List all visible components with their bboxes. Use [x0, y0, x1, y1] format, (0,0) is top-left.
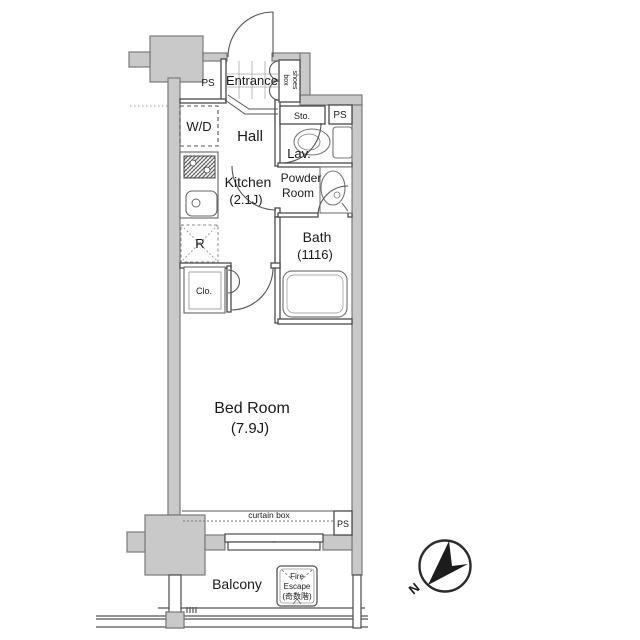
washbasin-icon	[320, 167, 352, 213]
lavatory-label: Lav.	[287, 146, 311, 161]
kitchen-counter	[180, 152, 218, 218]
wall-powder-bath-left	[278, 213, 318, 217]
sink-icon	[186, 191, 217, 216]
balcony-window	[225, 534, 323, 550]
wall-powder-bath-right	[348, 213, 352, 217]
powder-room-label-1: Powder	[281, 171, 322, 185]
pillar-bottom-left-arm	[127, 532, 145, 552]
kitchen-size-label: (2.1J)	[229, 192, 262, 207]
bath-size-label: (1116)	[297, 247, 333, 262]
burner-icon	[190, 160, 196, 166]
left-wall	[168, 78, 180, 515]
bedroom-door-leaf	[227, 266, 231, 312]
balcony-post-right	[353, 575, 361, 628]
balcony-post-left	[169, 575, 181, 613]
pipe-shaft-top-label: PS	[201, 78, 215, 89]
pipe-shaft-right-label: PS	[333, 110, 347, 121]
balcony-footing-overlay	[166, 612, 184, 628]
pillar-bottom-left	[145, 515, 205, 575]
wall-bath-bottom	[278, 319, 352, 324]
wall-under-ps	[180, 99, 226, 103]
stove-icon	[184, 156, 215, 178]
wall-kitchen-bedroom-stub	[271, 263, 280, 268]
window-pane-inner	[228, 542, 320, 550]
svg-text:box: box	[282, 74, 289, 86]
fire-escape-label-1: Fire	[290, 572, 304, 581]
floor-plan-drawing: N PS Entrance shoes box W/D Hall Sto. PS…	[0, 0, 640, 640]
closet-label: Clo.	[196, 286, 212, 296]
window-pane-outer	[225, 534, 323, 542]
bedroom-label: Bed Room	[214, 400, 290, 417]
burner-icon	[204, 167, 210, 173]
fire-escape-label-3: (奇数階)	[282, 591, 312, 601]
pillar-top-left	[150, 36, 203, 82]
bedroom-south-wall-right	[323, 535, 352, 550]
powder-room-label-2: Room	[282, 186, 314, 200]
right-wall-step	[300, 95, 362, 105]
wall-lav-powder	[278, 163, 352, 167]
floor-plan-page: N PS Entrance shoes box W/D Hall Sto. PS…	[0, 0, 640, 640]
pipe-shaft-bottom-label: PS	[337, 519, 349, 529]
pillar-top-left-arm	[129, 52, 150, 67]
fire-escape-label-2: Escape	[284, 582, 311, 591]
bedroom-size-label: (7.9J)	[231, 420, 269, 437]
refrigerator-label: R	[195, 236, 204, 251]
bath-label: Bath	[303, 229, 332, 245]
washer-dryer-label: W/D	[186, 119, 211, 134]
wall-hall-lav	[275, 100, 280, 166]
right-wall-main	[352, 105, 362, 575]
storage-label: Sto.	[294, 111, 310, 121]
bathtub-icon	[283, 271, 347, 317]
balcony-label: Balcony	[212, 576, 262, 592]
kitchen-label: Kitchen	[225, 174, 272, 190]
hall-label: Hall	[237, 128, 263, 145]
svg-text:shoes: shoes	[291, 71, 298, 90]
entrance-label: Entrance	[226, 73, 278, 88]
sink-drain-icon	[192, 199, 200, 207]
curtain-box-label: curtain box	[248, 510, 290, 520]
wall-bath-left	[275, 217, 280, 323]
bedroom-south-wall-left	[205, 535, 225, 550]
